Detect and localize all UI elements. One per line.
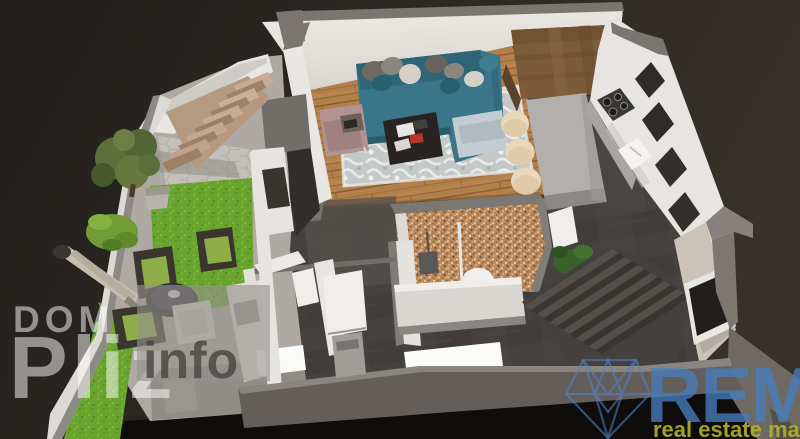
svg-text:real estate map: real estate map (653, 417, 800, 439)
svg-text:info: info (143, 332, 238, 390)
